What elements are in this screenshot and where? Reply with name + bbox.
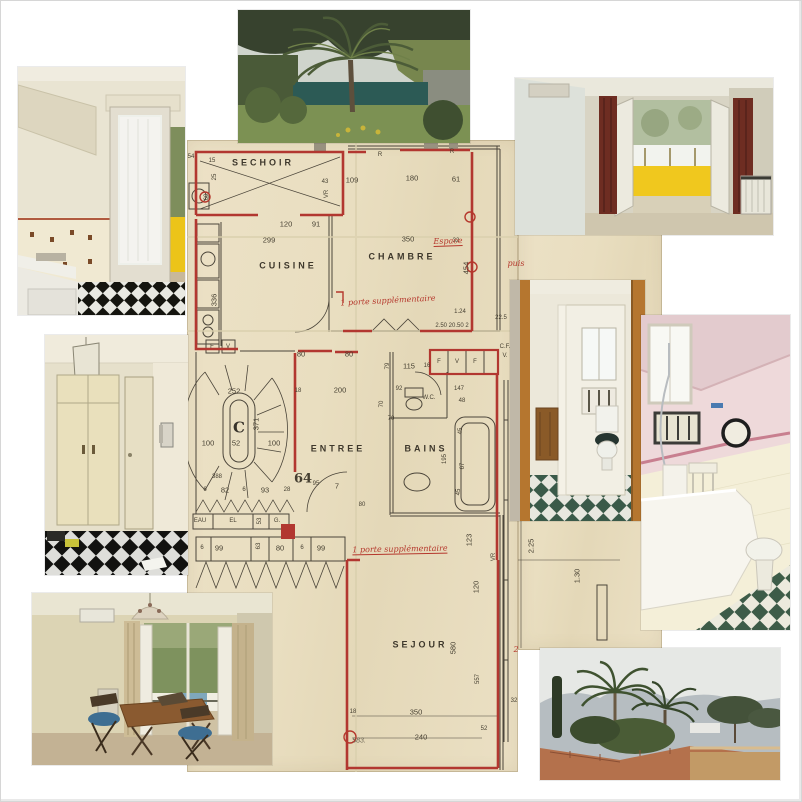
- photo-kitchen: [18, 67, 185, 315]
- wc-illustration: [510, 280, 645, 521]
- plan-label: SECHOIR: [232, 159, 294, 168]
- plan-label: 100: [268, 439, 281, 447]
- plan-label: 1 porte supplémentaire: [352, 545, 447, 556]
- plan-label: 99: [317, 544, 325, 552]
- plan-label: 22.5: [495, 315, 507, 321]
- plan-label: F: [210, 344, 214, 350]
- plan-label: 18: [295, 388, 302, 394]
- plan-label: 195: [442, 454, 448, 464]
- photo-dining: [32, 593, 272, 765]
- plan-label: 2.25: [527, 539, 535, 554]
- plan-label: 99: [215, 544, 223, 552]
- plan-label: 52: [232, 439, 240, 447]
- plan-label: 16: [424, 363, 431, 369]
- plan-label: 53: [257, 518, 263, 525]
- bedroom-illustration: [515, 78, 773, 235]
- plan-label: R: [378, 152, 382, 158]
- photo-hallway: [45, 335, 188, 575]
- plan-label: 2.50 20.50 2: [435, 323, 468, 329]
- plan-label: 299: [263, 236, 276, 244]
- plan-label: Espace: [433, 237, 462, 247]
- plan-label: CUISINE: [259, 262, 317, 271]
- plan-label: 70: [388, 416, 395, 422]
- plan-label: 6: [300, 545, 303, 551]
- plan-label: SEJOUR: [392, 641, 447, 650]
- plan-label: 1 porte supplémentaire: [340, 295, 436, 308]
- plan-label: 6: [200, 545, 203, 551]
- plan-label: 350: [410, 708, 423, 716]
- collage-canvas: SECHOIRCUISINECHAMBREENTREEBAINSW.C.SEJO…: [0, 0, 802, 802]
- plan-label: V: [455, 359, 459, 365]
- plan-label: 43: [322, 179, 329, 185]
- plan-label: 200: [334, 386, 347, 394]
- plan-label: 91: [312, 220, 320, 228]
- plan-label: F: [473, 359, 477, 365]
- plan-label: 25: [212, 174, 218, 181]
- plan-label: F: [437, 359, 441, 365]
- plan-label: 18: [350, 709, 357, 715]
- plan-label: 67: [460, 463, 466, 470]
- plan-label: EL: [229, 518, 236, 524]
- plan-label: 61: [452, 175, 460, 183]
- plan-label: 120: [472, 581, 480, 594]
- plan-label: 45: [456, 489, 462, 496]
- plan-label: ENTREE: [311, 445, 366, 454]
- plan-label: 54: [188, 154, 195, 160]
- plan-label: 79: [385, 363, 391, 370]
- plan-label: 123: [465, 534, 473, 547]
- plan-label: 80: [297, 350, 305, 358]
- photo-palm-view: [540, 648, 780, 780]
- plan-label: 147: [454, 386, 464, 392]
- plan-label: G.: [274, 518, 280, 524]
- plan-label: 48: [459, 398, 466, 404]
- palm-view-illustration: [540, 648, 780, 780]
- plan-label: 454: [462, 262, 470, 275]
- plan-label: 120: [280, 220, 293, 228]
- plan-label: 7: [335, 482, 339, 490]
- plan-label: 2: [513, 646, 518, 654]
- plan-label: 80: [359, 502, 366, 508]
- plan-label: 52: [481, 726, 488, 732]
- photo-garden: [238, 10, 470, 143]
- photo-bedroom: [515, 78, 773, 235]
- plan-label: BAINS: [404, 445, 447, 454]
- plan-label: 115: [403, 362, 415, 370]
- plan-label: 32: [511, 698, 518, 704]
- plan-label: 93: [261, 486, 269, 494]
- plan-label: V.: [502, 353, 507, 359]
- plan-label: 82: [221, 486, 229, 494]
- plan-label: 95: [313, 481, 320, 487]
- plan-label: 1.24: [454, 309, 466, 315]
- plan-label: 583.: [352, 738, 366, 745]
- plan-label: 28: [284, 487, 291, 493]
- plan-label: 180: [406, 174, 419, 182]
- hallway-illustration: [45, 335, 188, 575]
- kitchen-illustration: [18, 67, 185, 315]
- plan-label: 60: [204, 194, 210, 201]
- garden-illustration: [238, 10, 470, 143]
- plan-label: 63: [256, 543, 262, 550]
- plan-label: 371: [252, 418, 260, 431]
- plan-label: 1.30: [573, 569, 581, 584]
- dining-illustration: [32, 593, 272, 765]
- plan-label: C.F.: [500, 344, 511, 350]
- plan-label: 80: [276, 544, 284, 552]
- plan-label: 100: [202, 439, 215, 447]
- photo-bathtub: [641, 315, 790, 630]
- plan-label: 64: [294, 473, 312, 486]
- plan-label: 6: [203, 487, 206, 493]
- plan-label: R: [450, 149, 454, 155]
- plan-label: 80: [345, 350, 353, 358]
- plan-label: W.C.: [423, 395, 436, 401]
- plan-label: 15: [209, 158, 216, 164]
- plan-label: 240: [415, 733, 428, 741]
- plan-label: puis: [508, 260, 525, 268]
- plan-label: 6: [242, 487, 245, 493]
- plan-label: VR: [324, 190, 330, 198]
- plan-label: C: [233, 421, 245, 436]
- plan-label: EAU: [194, 518, 206, 524]
- plan-label: 45: [458, 428, 464, 435]
- plan-label: V: [226, 344, 230, 350]
- plan-label: CHAMBRE: [369, 253, 436, 262]
- plan-label: 252: [228, 387, 241, 395]
- plan-label: VR: [491, 553, 497, 561]
- photo-wc: [510, 280, 645, 521]
- plan-label: 557: [475, 674, 481, 684]
- plan-label: 580: [449, 642, 457, 655]
- plan-label: 336: [210, 294, 218, 307]
- plan-label: 109: [346, 176, 359, 184]
- plan-label: 92: [396, 386, 403, 392]
- plan-label: 70: [379, 401, 385, 408]
- plan-label: 388: [212, 474, 222, 480]
- bathtub-illustration: [641, 315, 790, 630]
- plan-label: 350: [402, 235, 415, 243]
